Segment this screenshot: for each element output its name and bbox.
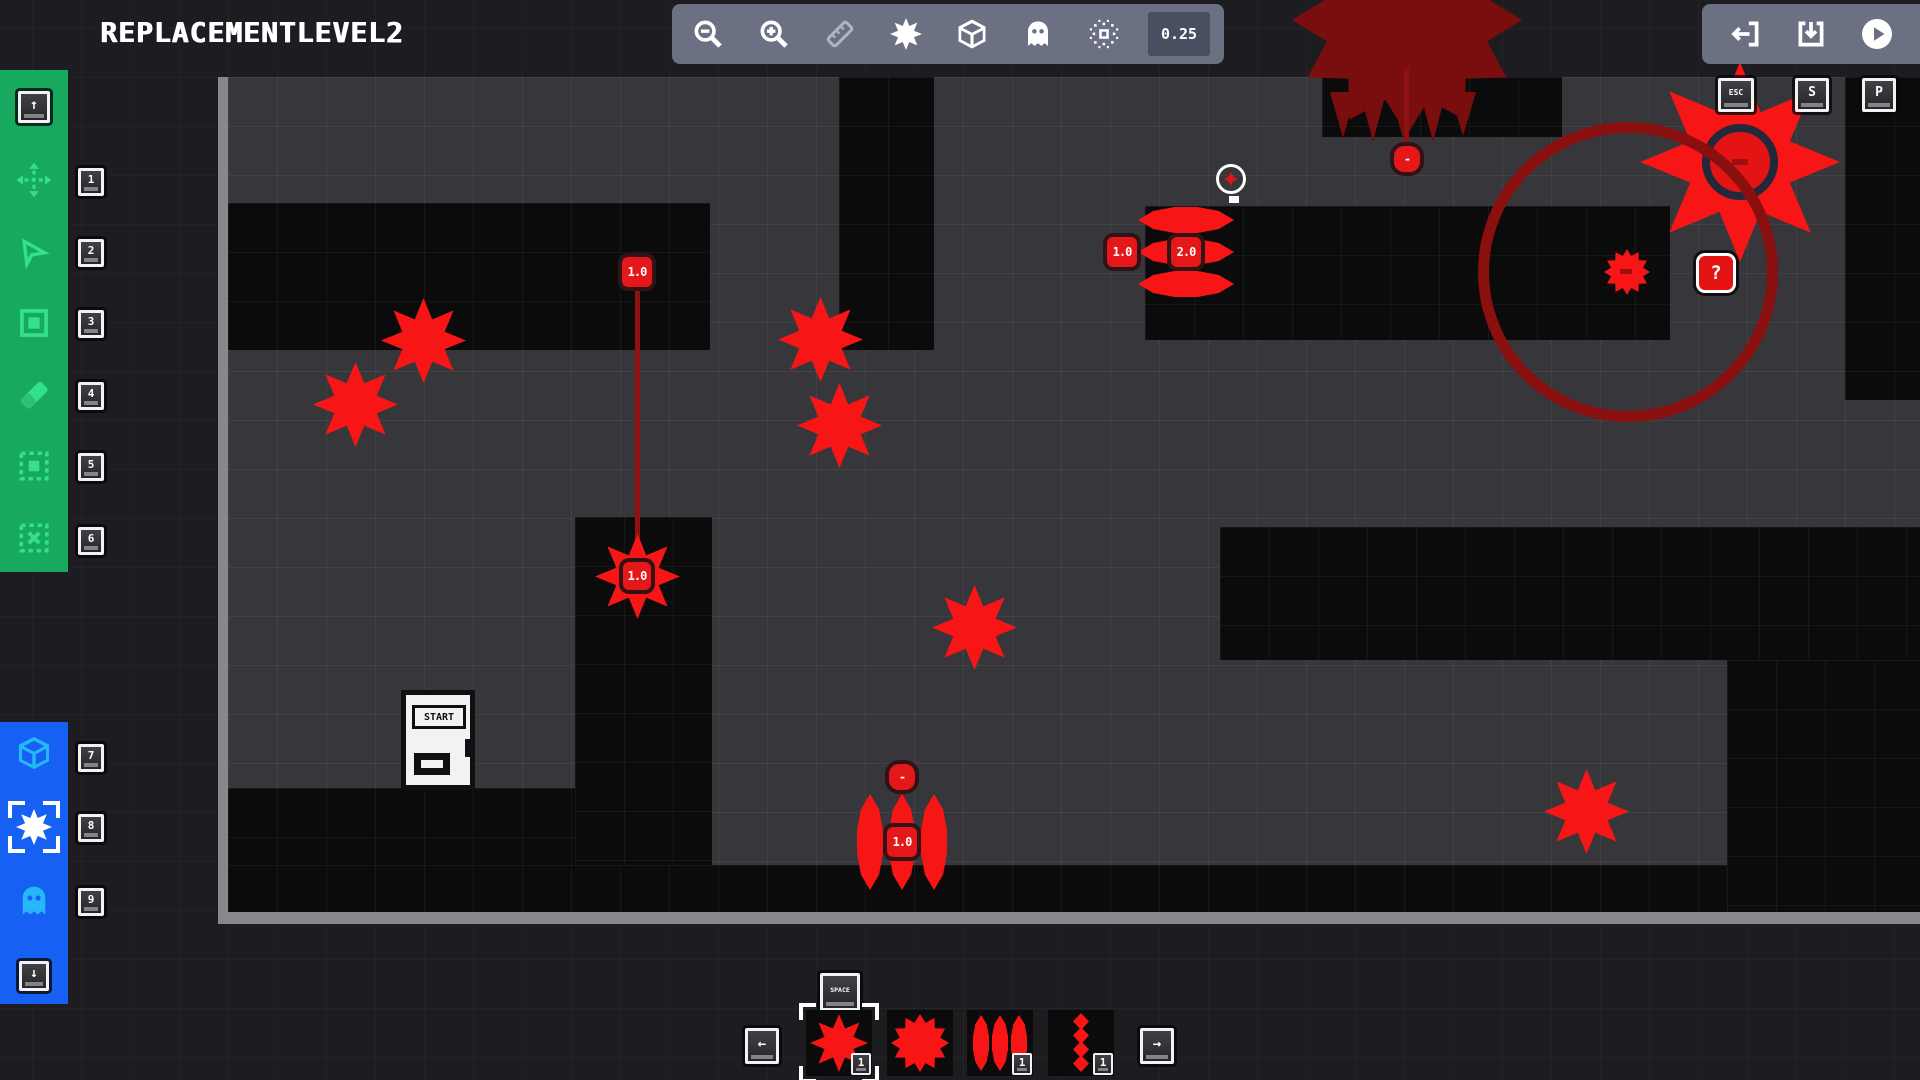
editor-toolbar: 0.25 — [672, 4, 1224, 64]
grid-snap-value[interactable]: 0.25 — [1148, 12, 1210, 56]
rectangle-tool-icon — [17, 306, 51, 340]
play-icon — [1859, 16, 1895, 52]
tool-key-3: 3 — [78, 310, 104, 338]
vmissile-node-box[interactable]: - — [885, 760, 919, 794]
palette-missile-sprite — [992, 1015, 1008, 1071]
entities-sidebar: ↓ — [0, 722, 68, 1004]
move-icon — [15, 161, 53, 199]
bulb-trigger[interactable] — [1216, 164, 1246, 194]
ghost-icon — [1022, 18, 1054, 50]
marquee-select-icon — [16, 448, 52, 484]
palette-prev-key[interactable]: ← — [745, 1028, 779, 1064]
hotkey-p: P — [1862, 78, 1896, 112]
tool-rectangle[interactable] — [0, 301, 68, 345]
start-door-label: START — [412, 705, 466, 729]
level-title: REPLACEMENTLEVEL2 — [100, 16, 404, 49]
start-door[interactable]: START — [401, 690, 475, 790]
bulb-star-icon — [1224, 172, 1238, 186]
start-door-slot — [414, 753, 450, 775]
zoom-in-icon — [757, 17, 791, 51]
big-spike-core-dash — [1732, 159, 1748, 165]
palette-chain-sprite — [1073, 1055, 1089, 1072]
hmissile-value-box[interactable]: 2.0 — [1167, 233, 1205, 271]
hotkey-s: S — [1795, 78, 1829, 112]
spike-icon — [890, 18, 922, 50]
exit-button[interactable] — [1724, 12, 1768, 56]
entity-block[interactable] — [0, 731, 68, 775]
cube-icon — [955, 17, 989, 51]
tools-sidebar: ↑ — [0, 70, 68, 572]
zoom-out-button[interactable] — [686, 12, 730, 56]
tool-select[interactable] — [0, 230, 68, 274]
save-icon — [1794, 17, 1828, 51]
hotkey-esc: ESC — [1718, 78, 1754, 112]
spike-star[interactable] — [381, 298, 466, 383]
wall-block[interactable] — [1727, 660, 1920, 912]
spike-mode-button[interactable] — [884, 12, 928, 56]
wall-block[interactable] — [1220, 527, 1920, 660]
ghost-icon-blue — [16, 883, 52, 919]
mover-speed-box[interactable]: 1.0 — [618, 253, 656, 291]
shift-hint-key: ↑ — [18, 91, 50, 123]
start-door-handle — [465, 739, 472, 757]
vmissile-value-box[interactable]: 1.0 — [883, 823, 921, 861]
topright-toolbar — [1702, 4, 1920, 64]
level-frame-left — [218, 77, 228, 924]
block-mode-button[interactable] — [950, 12, 994, 56]
palette-item-spike-burst[interactable] — [887, 1010, 953, 1076]
play-button[interactable] — [1855, 12, 1899, 56]
tool-key-1: 1 — [78, 168, 104, 196]
palette-missile-sprite — [973, 1015, 989, 1071]
level-frame-bottom — [218, 912, 1920, 924]
hmissile-speed-box[interactable]: 1.0 — [1103, 233, 1141, 271]
exit-icon — [1729, 17, 1763, 51]
spike-star[interactable] — [797, 383, 882, 468]
spike-star[interactable] — [932, 585, 1017, 670]
mover-star-value-box[interactable]: 1.0 — [619, 558, 655, 594]
tool-marquee-delete[interactable] — [0, 516, 68, 560]
spike-star[interactable] — [778, 297, 863, 382]
entity-key-8: 8 — [78, 814, 104, 842]
tool-eraser[interactable] — [0, 373, 68, 417]
grid-snap-icon — [1087, 17, 1121, 51]
marquee-delete-icon — [16, 520, 52, 556]
tool-key-5: 5 — [78, 453, 104, 481]
eraser-icon — [16, 377, 52, 413]
bulb-base — [1229, 196, 1239, 203]
zoom-out-icon — [691, 17, 725, 51]
palette-badge-3: 1 — [1012, 1053, 1032, 1075]
spike-star[interactable] — [1544, 769, 1629, 854]
palette-badge-1: 1 — [851, 1053, 871, 1075]
palette-next-key[interactable]: → — [1140, 1028, 1174, 1064]
grid-snap-button[interactable] — [1082, 12, 1126, 56]
wall-block[interactable] — [228, 865, 1920, 912]
ruler-icon — [822, 16, 858, 52]
small-mine-dash — [1620, 269, 1632, 274]
palette-spike-burst-sprite — [891, 1014, 949, 1072]
wall-block[interactable] — [839, 77, 934, 350]
tool-key-6: 6 — [78, 527, 104, 555]
tool-marquee-select[interactable] — [0, 444, 68, 488]
cube-icon-blue — [15, 734, 53, 772]
ruler-button[interactable] — [818, 12, 862, 56]
down-hint-key: ↓ — [19, 961, 49, 991]
cloud-node-box[interactable]: - — [1390, 142, 1424, 176]
wall-block[interactable] — [1845, 77, 1920, 400]
entity-key-9: 9 — [78, 888, 104, 916]
entity-spike-selected[interactable] — [0, 801, 68, 853]
tool-move[interactable] — [0, 158, 68, 202]
tool-key-2: 2 — [78, 239, 104, 267]
level-editor: 1.0 1.0 1.0 2.0 - 1.0 - ? START — [0, 0, 1920, 1080]
palette-item-spike-chain[interactable]: 1 — [1048, 1010, 1114, 1076]
ghost-mode-button[interactable] — [1016, 12, 1060, 56]
spike-icon-selected — [16, 809, 52, 845]
save-button[interactable] — [1789, 12, 1833, 56]
entity-key-7: 7 — [78, 744, 104, 772]
palette-item-missiles[interactable]: 1 — [967, 1010, 1033, 1076]
palette-badge-4: 1 — [1093, 1053, 1113, 1075]
entity-ghost[interactable] — [0, 879, 68, 923]
palette-item-spike-star[interactable]: 1 — [806, 1010, 872, 1076]
question-item-box[interactable]: ? — [1696, 253, 1736, 293]
cloud-link-line — [1404, 68, 1409, 144]
cursor-icon — [17, 235, 51, 269]
spike-star[interactable] — [313, 362, 398, 447]
tool-key-4: 4 — [78, 382, 104, 410]
zoom-in-button[interactable] — [752, 12, 796, 56]
